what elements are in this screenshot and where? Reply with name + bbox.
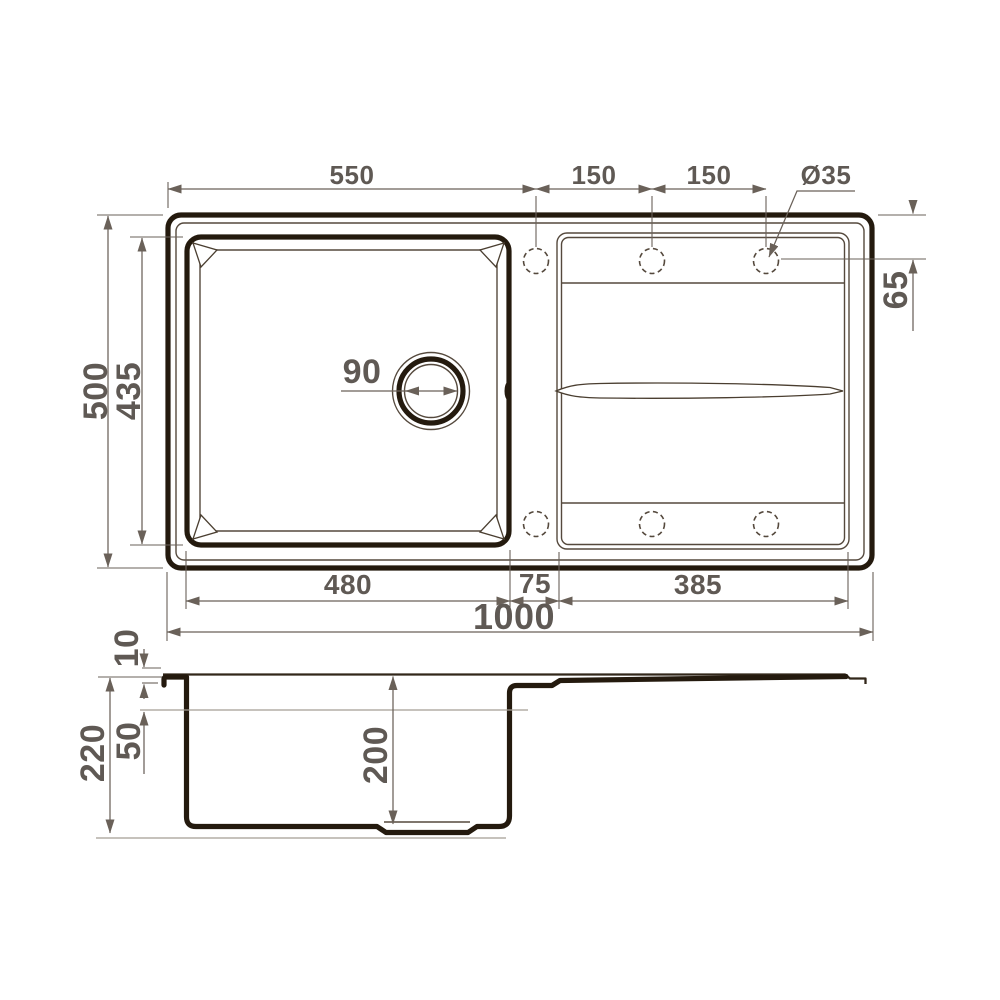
drainboard-groove (556, 383, 843, 398)
side-view (96, 675, 866, 839)
faucet-hole (524, 512, 549, 537)
dim-label-10: 10 (108, 629, 146, 668)
dim-label-150a: 150 (572, 160, 617, 190)
technical-drawing-canvas: 550 150 150 Ø35 65 500 435 90 480 75 385… (0, 0, 1000, 1000)
dim-label-hole-diameter: Ø35 (801, 160, 852, 190)
side-section-profile (164, 677, 846, 833)
dim-label-75: 75 (519, 568, 551, 599)
bowl-corner-chamfer-tr (480, 243, 504, 267)
faucet-hole (640, 249, 665, 274)
faucet-hole (524, 249, 549, 274)
leader-hole-diameter (769, 191, 855, 257)
bowl-corner-chamfer-tl (193, 243, 217, 267)
dim-label-150b: 150 (687, 160, 732, 190)
dim-label-90: 90 (343, 353, 382, 391)
top-view (168, 215, 872, 568)
overflow-slot (505, 383, 511, 400)
dim-label-50: 50 (110, 722, 148, 761)
bowl-corner-chamfer-bl (193, 515, 217, 539)
dim-label-200: 200 (357, 726, 395, 784)
dim-label-1000: 1000 (473, 596, 555, 637)
dim-label-65: 65 (877, 271, 915, 310)
dim-label-480: 480 (324, 569, 372, 600)
dim-label-220: 220 (74, 724, 112, 782)
drawing-page: 550 150 150 Ø35 65 500 435 90 480 75 385… (0, 0, 1000, 1000)
dim-label-550: 550 (330, 160, 375, 190)
dim-label-385: 385 (674, 569, 722, 600)
bowl-corner-chamfer-br (480, 515, 504, 539)
faucet-hole (754, 249, 779, 274)
faucet-hole (640, 512, 665, 537)
faucet-hole (754, 512, 779, 537)
dim-label-435: 435 (110, 362, 148, 420)
